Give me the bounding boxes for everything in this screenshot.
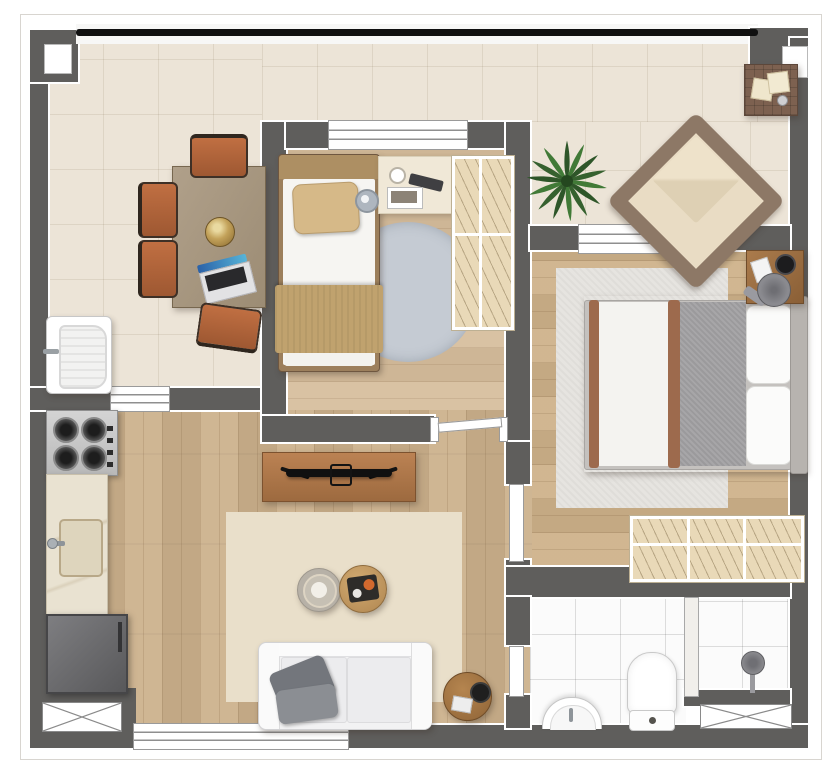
dining-table	[172, 166, 266, 308]
refrigerator	[46, 614, 128, 694]
single-bed-blanket	[275, 285, 383, 353]
burner-2	[81, 417, 107, 443]
tray-white-item	[352, 588, 362, 598]
toilet-tank	[629, 710, 675, 731]
toilet-flush-button	[649, 717, 656, 724]
double-bed-pillow-2	[746, 386, 792, 465]
sofa-arm-right	[411, 643, 432, 729]
dining-chair-left-1	[138, 182, 178, 238]
alarm-clock-face	[361, 195, 369, 203]
shower-fixture	[741, 651, 765, 695]
laundry-tub-basin	[59, 325, 107, 389]
kitchen-faucet-knob	[47, 538, 58, 549]
sheet-trim-right	[668, 300, 680, 468]
wardrobe-shelf	[455, 233, 511, 236]
coffee-table-gray	[297, 568, 341, 612]
cooktop	[46, 410, 118, 476]
laundry-faucet	[43, 349, 59, 354]
cooktop-knobs	[107, 419, 113, 467]
console-photo-image	[391, 191, 417, 203]
sofa-side-table	[443, 672, 492, 721]
shaft-bottom-right	[700, 704, 792, 729]
double-bed-headboard	[790, 296, 808, 474]
single-bed-foot-sheet	[285, 353, 373, 366]
sofa	[258, 642, 432, 730]
burner-1	[53, 417, 79, 443]
side-table-card	[451, 695, 473, 713]
master-wardrobe-shelf	[633, 543, 801, 546]
tv	[278, 462, 400, 486]
side-table-decor	[777, 95, 788, 106]
master-wardrobe-divider-2	[743, 519, 746, 579]
sofa-back	[279, 643, 411, 657]
column-top-left	[44, 44, 72, 74]
decor-bowl	[205, 217, 235, 247]
dining-chair-left-2	[138, 240, 178, 298]
alarm-clock	[355, 189, 379, 213]
shaft-bottom-left	[42, 702, 122, 732]
nightstand-speaker	[775, 254, 796, 275]
terrace-floor-top	[262, 44, 790, 122]
double-bed	[584, 296, 806, 472]
single-bed	[278, 154, 380, 372]
bath-sink-faucet	[569, 708, 573, 722]
terrace-side-table	[744, 64, 798, 116]
laundry-tub	[46, 316, 112, 394]
wall-master-left-upper	[506, 442, 530, 484]
console-photo	[387, 187, 423, 209]
side-table-speaker	[470, 682, 491, 703]
bedroom-window	[328, 120, 468, 150]
laptop	[197, 254, 255, 305]
potted-plant	[524, 134, 610, 228]
terrace-glass-railing	[76, 29, 758, 36]
burner-4	[81, 445, 107, 471]
master-wardrobe-divider-1	[687, 519, 690, 579]
laptop-keyboard	[205, 266, 248, 291]
double-bed-sheet	[594, 302, 674, 466]
tray-orange-item	[363, 578, 375, 590]
master-wardrobe	[630, 516, 804, 582]
armchair-cushion	[652, 136, 740, 224]
kitchen-counter	[46, 474, 108, 616]
fridge-handle	[118, 622, 122, 652]
sofa-cushion-2	[347, 657, 411, 723]
toilet	[627, 652, 677, 730]
coffee-table-gray-plate	[311, 582, 327, 598]
toilet-bowl	[627, 652, 677, 714]
single-bed-headboard	[279, 155, 379, 179]
bedroom-wardrobe	[452, 156, 514, 330]
double-bed-blanket	[680, 302, 746, 466]
tv-stand-center	[330, 464, 352, 486]
shower-partition	[684, 597, 699, 697]
master-nightstand	[746, 250, 804, 304]
bath-sink-bowl	[550, 705, 596, 730]
wall-bedroom-bottom	[262, 416, 434, 442]
dining-chair-top	[190, 134, 248, 178]
dining-chair-bottom	[195, 302, 263, 354]
double-bed-pillow-1	[746, 305, 792, 384]
shower-head	[741, 651, 765, 675]
kitchen-sink	[59, 519, 103, 577]
floor-plan	[0, 0, 834, 768]
console-mug	[389, 167, 406, 184]
nightstand-fan	[757, 273, 791, 307]
coffee-table-wood	[339, 565, 387, 613]
coffee-table-tray	[346, 574, 379, 603]
wall-bath-left-lower	[506, 695, 530, 728]
wardrobe-divider	[479, 159, 482, 327]
service-pass-through	[110, 386, 170, 412]
master-door	[509, 484, 524, 562]
burner-3	[53, 445, 79, 471]
side-table-cushion-2	[767, 71, 790, 94]
sheet-trim-left	[589, 300, 599, 468]
bathroom-door	[509, 646, 524, 697]
wall-bath-left-upper	[506, 597, 530, 645]
single-bed-pillow	[292, 181, 361, 234]
